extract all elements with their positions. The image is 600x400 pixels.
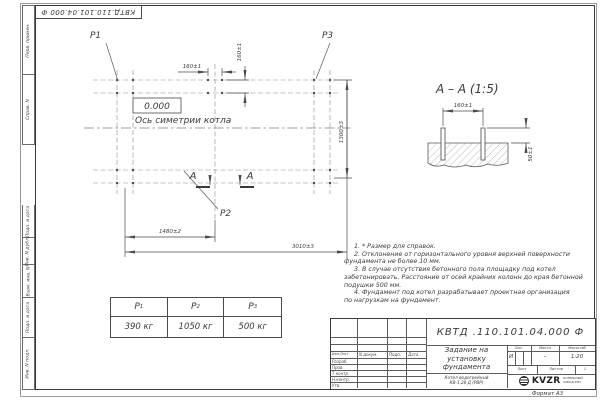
zero-level-label: 0.000 — [144, 102, 170, 112]
axis-caption: Ось симетрии котла — [135, 116, 231, 126]
stamp-cell-podp-data-2: Подп. и дата — [22, 298, 35, 338]
load-table: P1 P2 P3 390 кг 1050 кг 500 кг — [110, 297, 282, 338]
top-doc-number: КВТД.110.101.04.000 Ф — [41, 8, 135, 16]
company-logo: KVZR КОТЕЛЬНЫЙ ЗАВОД РЭП — [507, 374, 595, 388]
tb-header-izm-list: Изм.Лист — [332, 352, 357, 356]
tb-row-tkontr: Т.контр. — [332, 371, 349, 376]
stamp-label: Инв. N дубл. — [26, 236, 31, 266]
plan-view-svg: P1 P3 P2 0.000 Ось симетрии котла А А 16… — [78, 22, 378, 267]
load-table-value-p1: 390 кг — [111, 317, 168, 337]
lit-value: И — [507, 354, 515, 360]
top-doc-number-cell: КВТД.110.101.04.000 Ф — [35, 5, 142, 19]
format-label: Формат А3 — [500, 391, 595, 397]
section-letter-right: А — [246, 171, 254, 182]
sheets-value: 1 — [575, 367, 595, 371]
point-p3-label: P3 — [322, 31, 333, 41]
section-marks: А А — [189, 171, 254, 187]
title-block: Изм.Лист N докум. Подп. Дата Разраб. Про… — [330, 318, 596, 390]
section-letter-left: А — [189, 171, 197, 182]
stud-pitch-dim — [443, 108, 483, 126]
stamp-label: Взам. инв. N — [26, 266, 31, 296]
point-p2-label: P2 — [220, 209, 231, 219]
plan-centerlines — [93, 64, 340, 220]
dim-stud-pitch: 160±1 — [454, 103, 473, 109]
dim-length: 3010±3 — [292, 244, 315, 250]
note-line: забетонировать. Расстояние от осей крайн… — [344, 274, 594, 282]
point-p1-label: P1 — [90, 31, 101, 41]
mass-label: Масса — [531, 346, 559, 350]
stamp-cell-inv-podl: Инв. N подл. — [22, 338, 35, 390]
stamp-cell-podp-data-1: Подп. и дата — [22, 205, 35, 238]
lit-label: Лит. — [507, 346, 531, 350]
stamp-cell-spacer — [22, 145, 35, 205]
note-line: по нагрузкам на фундамент. — [344, 297, 594, 305]
scale-label: Масштаб — [559, 346, 595, 350]
tb-header-podp: Подп. — [389, 352, 401, 357]
section-title: А – А (1:5) — [435, 82, 499, 96]
anchor-bolt-dots — [116, 79, 331, 184]
tb-row-nkontr: Н.контр. — [332, 377, 350, 382]
left-stamp-strip: Перв. примен. Справ. N Подп. и дата Инв.… — [22, 5, 35, 390]
stamp-cell-inv-dubl: Инв. N дубл. — [22, 238, 35, 265]
point-leaders — [106, 43, 330, 209]
load-table-header-p2: P2 — [168, 298, 225, 317]
dim-width: 1300±3 — [339, 120, 345, 143]
company-name: КОТЕЛЬНЫЙ ЗАВОД РЭП — [563, 377, 583, 384]
scale-value: 1:20 — [559, 354, 595, 360]
stamp-cell-vzam-inv: Взам. инв. N — [22, 265, 35, 298]
sheets-label: Листов — [537, 367, 575, 371]
dim-bolt-pitch-x: 160±1 — [183, 64, 202, 70]
section-view-svg: А – А (1:5) 160±1 50±1 — [408, 80, 558, 180]
load-table-value-p3: 500 кг — [224, 317, 281, 337]
load-table-value-p2: 1050 кг — [168, 317, 225, 337]
stamp-label: Перв. примен. — [26, 23, 31, 58]
bolt-pitch-dim-lines — [178, 66, 249, 107]
tb-row-prov: Пров. — [332, 365, 344, 370]
stamp-label: Подп. и дата — [26, 302, 31, 333]
load-table-header-p3: P3 — [224, 298, 281, 317]
note-line: 3. В случае отсутствия бетонного пола пл… — [344, 266, 594, 274]
drawing-title: Задание на установку фундамента — [427, 346, 506, 372]
dim-half-length: 1480±2 — [159, 229, 182, 235]
stamp-cell-sprav-n: Справ. N — [22, 75, 35, 145]
dim-bolt-pitch-y: 160±1 — [237, 43, 243, 62]
stamp-label: Инв. N подл. — [26, 348, 31, 378]
note-line: 4. Фундамент под котел разрабатывает про… — [344, 289, 594, 297]
tb-row-utv: Утв. — [332, 383, 340, 388]
drawing-sheet: Перв. примен. Справ. N Подп. и дата Инв.… — [0, 0, 600, 400]
note-line: 1. * Размер для справок. — [344, 243, 594, 251]
tb-row-razrab: Разраб. — [332, 359, 348, 364]
stamp-label: Справ. N — [26, 99, 31, 120]
stamp-label: Подп. и дата — [26, 205, 31, 236]
load-table-header-p1: P1 — [111, 298, 168, 317]
dim-stud-protrusion: 50±1 — [528, 146, 534, 161]
concrete-pad — [428, 143, 508, 167]
sheet-label: Лист — [507, 367, 537, 371]
product-name: Котел водогрейный КВ-1,28 Д (РВР) — [427, 375, 506, 386]
kvzr-logo-text: KVZR — [532, 376, 561, 386]
title-block-doc-number: КВТД .110.101.04.000 Ф — [426, 319, 595, 345]
notes-block: 1. * Размер для справок. 2. Отклонение о… — [344, 243, 594, 305]
stamp-cell-perv-primen: Перв. примен. — [22, 5, 35, 75]
mass-value: – — [531, 354, 559, 360]
tb-header-n-dokum: N докум. — [359, 352, 378, 357]
tb-header-data: Дата — [408, 352, 418, 357]
kvzr-globe-icon — [519, 376, 529, 386]
note-line: фундамента не более 10 мм. — [344, 258, 594, 266]
